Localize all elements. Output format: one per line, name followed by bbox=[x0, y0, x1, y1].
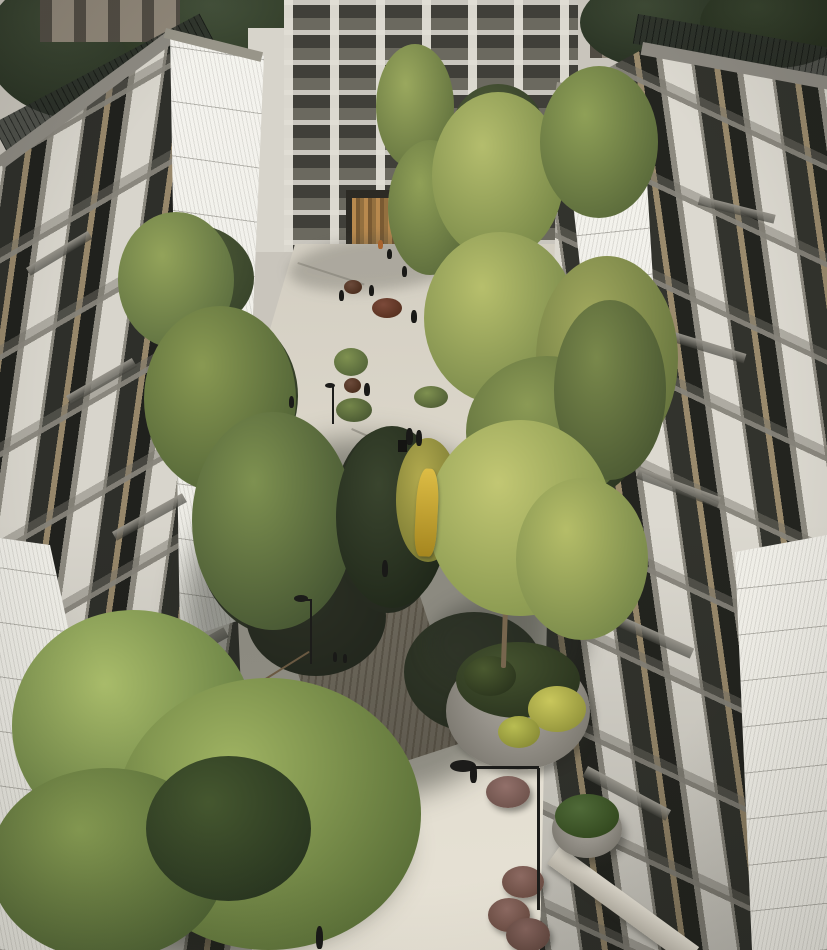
lamp-head bbox=[325, 383, 335, 388]
person bbox=[470, 764, 477, 783]
person bbox=[364, 383, 370, 396]
person bbox=[289, 396, 294, 408]
planter-pot bbox=[344, 280, 362, 294]
grass-top bbox=[555, 794, 619, 838]
tree-canopy bbox=[192, 412, 354, 630]
moss-ball-yellow bbox=[498, 716, 540, 748]
person bbox=[343, 654, 347, 663]
luggage bbox=[398, 440, 407, 452]
person bbox=[402, 266, 407, 277]
lamp-pole bbox=[310, 600, 312, 664]
tree-canopy-dark bbox=[146, 756, 311, 901]
person bbox=[387, 249, 392, 259]
architectural-rendering-courtyard bbox=[0, 0, 827, 950]
person bbox=[406, 428, 413, 445]
shrub-mound bbox=[336, 398, 372, 422]
planter-pot bbox=[344, 378, 361, 393]
shrub-ball bbox=[464, 656, 516, 696]
person bbox=[382, 560, 388, 577]
person-orange bbox=[378, 240, 383, 249]
tree-canopy bbox=[516, 478, 648, 640]
lamp-pole bbox=[332, 386, 334, 424]
tree-canopy bbox=[540, 66, 658, 218]
person bbox=[369, 285, 374, 296]
lamp-pole bbox=[537, 768, 540, 910]
shrub-mound bbox=[414, 386, 448, 408]
planter-pot bbox=[372, 298, 402, 318]
person bbox=[416, 430, 422, 446]
person bbox=[333, 652, 337, 662]
person bbox=[339, 290, 344, 301]
shrub-mound bbox=[334, 348, 368, 376]
person bbox=[411, 310, 417, 323]
pouf bbox=[506, 918, 550, 950]
lamp-head bbox=[294, 595, 308, 602]
pouf bbox=[486, 776, 530, 808]
person bbox=[316, 926, 323, 949]
